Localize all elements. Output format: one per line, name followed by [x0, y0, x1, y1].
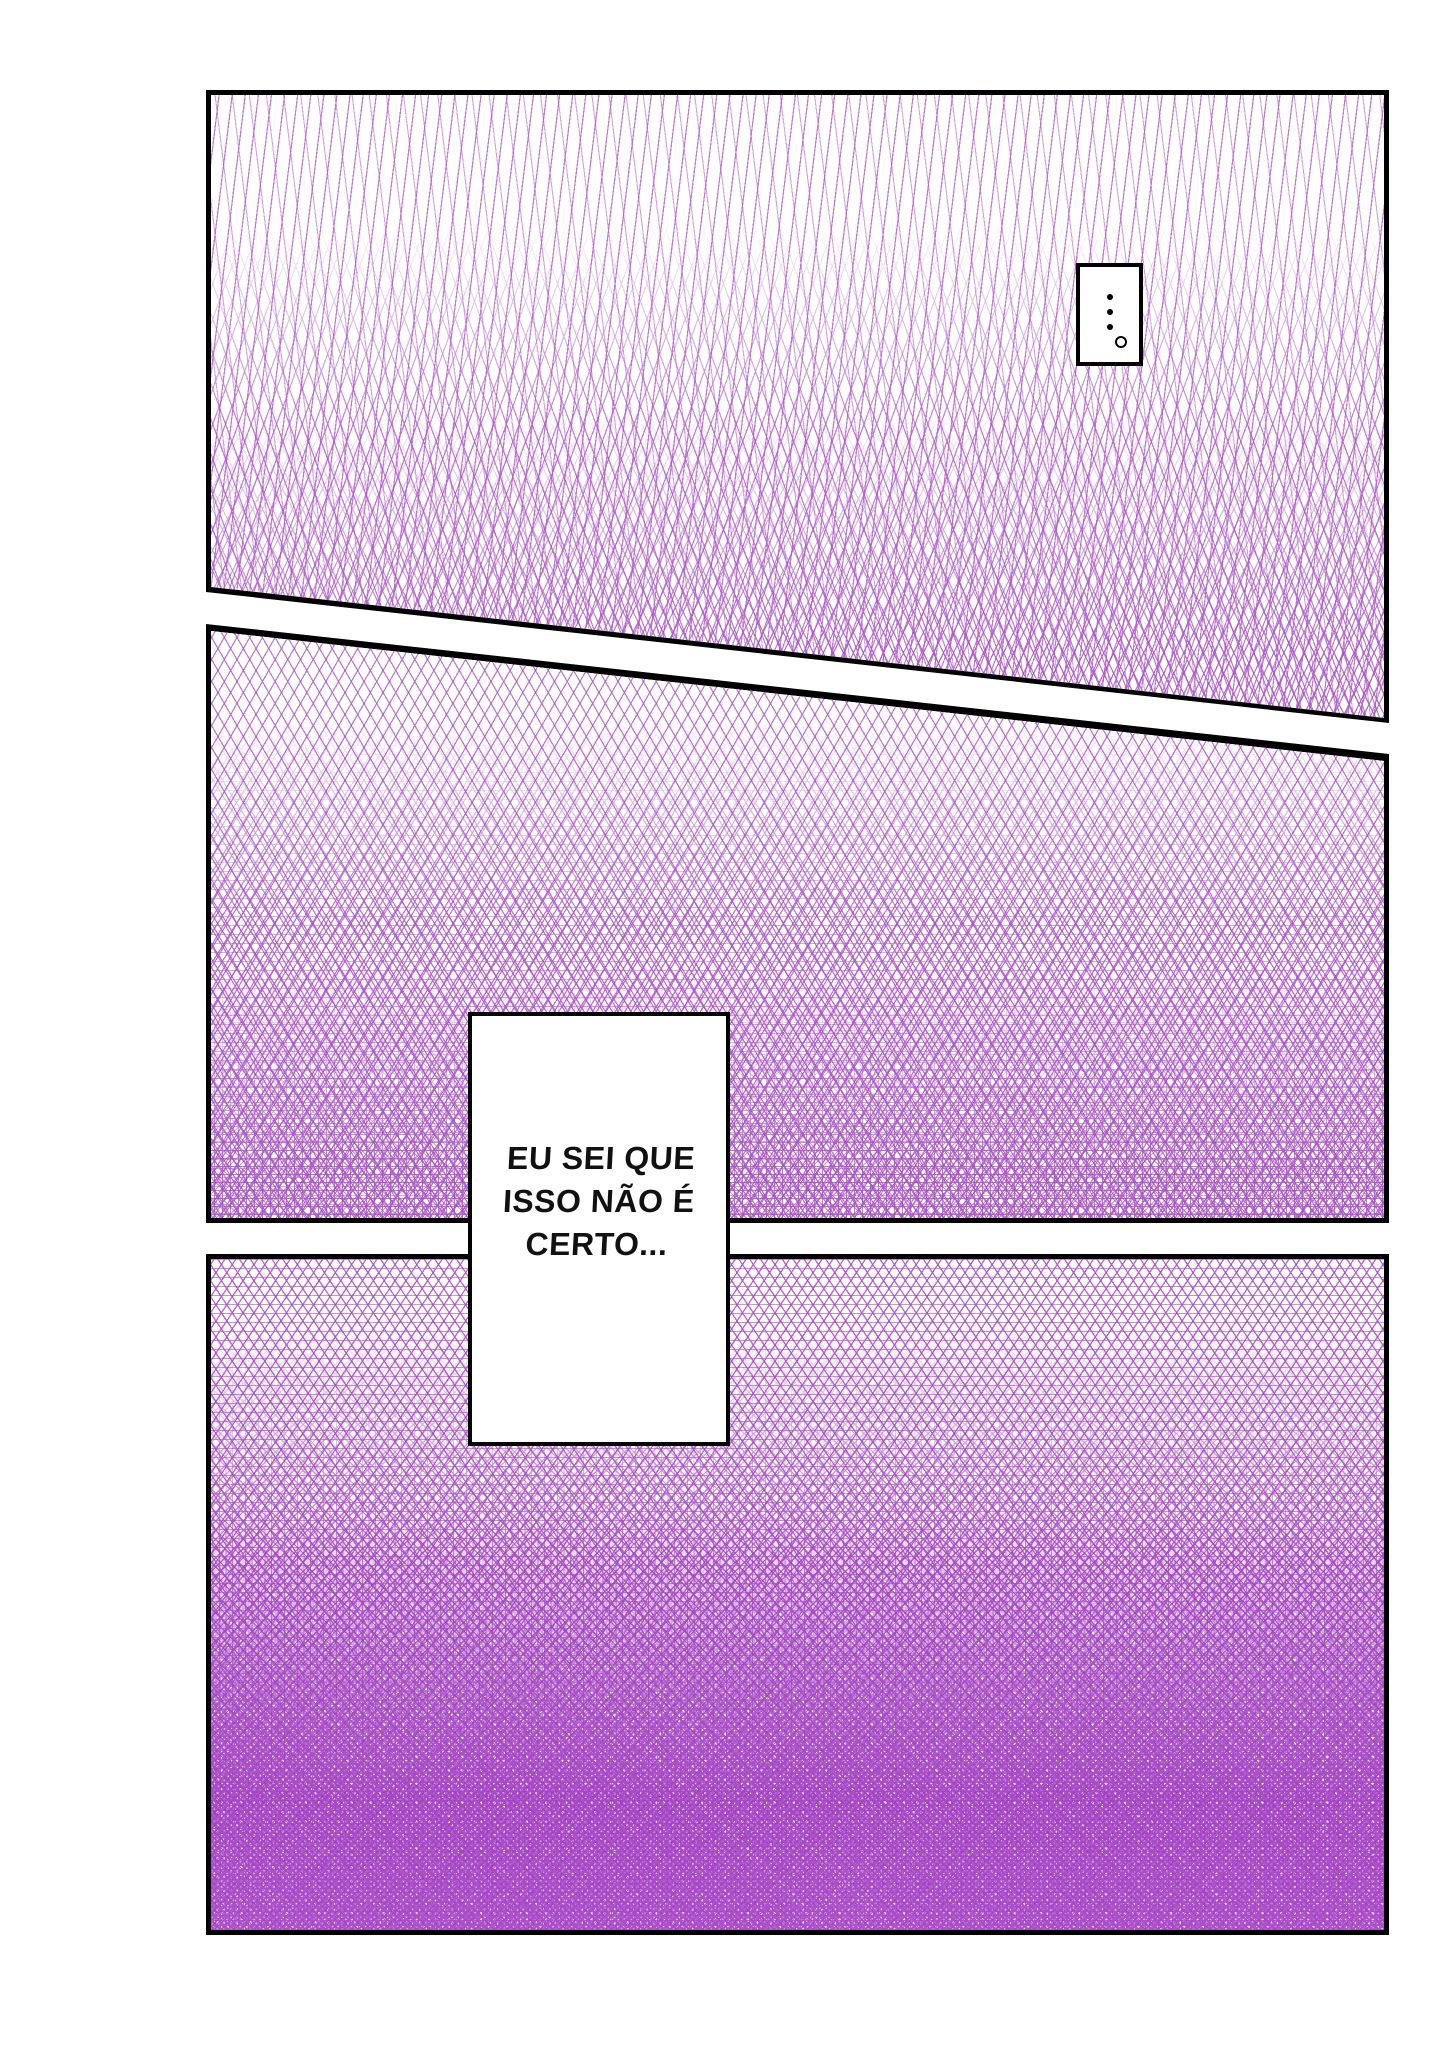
- panel-1-tone-art: [206, 90, 1389, 723]
- panel-2-frame: [206, 624, 1389, 1223]
- ideographic-period-icon: [1115, 336, 1127, 348]
- panel-2-tone-art: [206, 624, 1389, 1223]
- panel-1-frame: [206, 90, 1389, 723]
- speech-text: EU SEI QUE ISSO NÃO É CERTO...: [500, 1137, 698, 1266]
- ellipsis-dot-icon: [1107, 294, 1113, 300]
- speech-bubble: EU SEI QUE ISSO NÃO É CERTO...: [468, 1012, 730, 1446]
- panel-3-frame: [206, 1254, 1389, 1935]
- speech-line-3: CERTO...: [500, 1223, 694, 1266]
- manga-page: EU SEI QUE ISSO NÃO É CERTO...: [0, 0, 1447, 2048]
- speech-line-1: EU SEI QUE: [504, 1137, 698, 1180]
- speech-line-2: ISSO NÃO É: [502, 1180, 696, 1223]
- thought-bubble: [1076, 263, 1143, 366]
- ellipsis-dot-icon: [1107, 324, 1113, 330]
- ellipsis-dot-icon: [1107, 309, 1113, 315]
- panel-3-tone-art: [206, 1254, 1389, 1935]
